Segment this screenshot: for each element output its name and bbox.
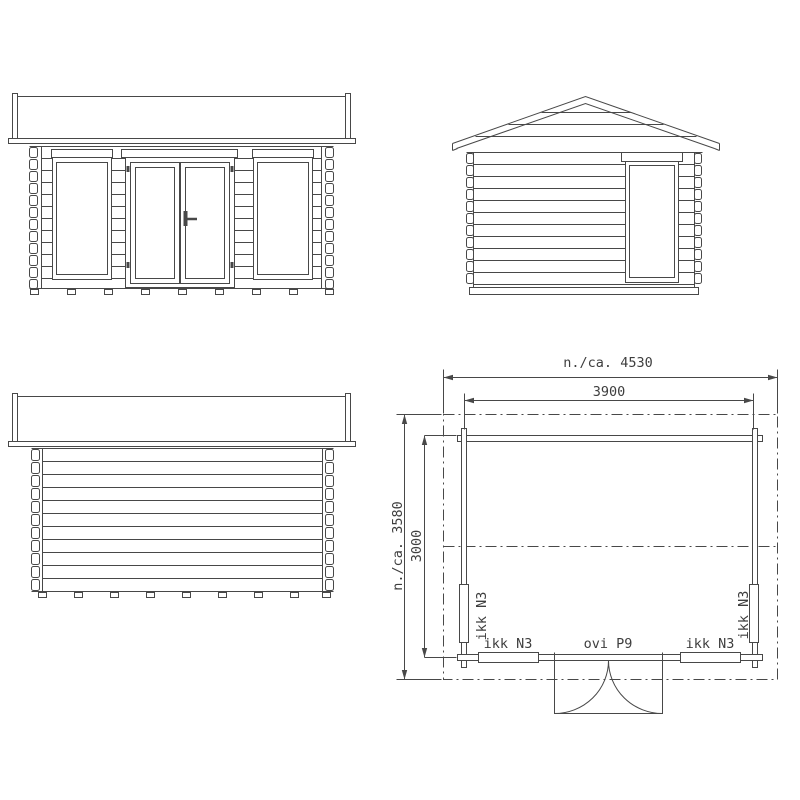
- side-elevation: [453, 97, 720, 295]
- plan-label-window-right-wall: ikk N3: [736, 591, 752, 640]
- dim-arrow-icon: [744, 398, 754, 403]
- dim-arrow-icon: [444, 375, 454, 380]
- plan-dimensions: n./ca. 4530 3900 n./ca. 3580 3000: [390, 355, 778, 680]
- front-elevation: [9, 94, 356, 295]
- dim-arrow-icon: [402, 670, 407, 680]
- dim-arrow-icon: [422, 648, 427, 658]
- cabin-technical-drawing: n./ca. 4530 3900 n./ca. 3580 3000 ikk N3: [0, 0, 800, 800]
- plan-labels: ikk N3 ovi P9 ikk N3 ikk N3 ikk N3: [474, 591, 752, 652]
- door-hinge-icon: [231, 166, 234, 172]
- rear-wall-logs: [32, 449, 334, 592]
- front-window-left: [52, 150, 113, 280]
- door-hinge-icon: [127, 166, 130, 172]
- dim-arrow-icon: [465, 398, 475, 403]
- plan-label-window-left-wall: ikk N3: [474, 592, 490, 641]
- front-corner-log-ends-left: [30, 148, 38, 289]
- side-corner-log-ends-left: [467, 154, 474, 284]
- door-hinge-icon: [231, 262, 234, 268]
- plan-window-front-right: [681, 653, 741, 663]
- plan-walls: [458, 429, 763, 668]
- plan-label-door: ovi P9: [584, 636, 633, 652]
- front-foundation-blocks: [31, 290, 334, 295]
- plan-door: [555, 661, 663, 714]
- plan-wall-back: [458, 436, 763, 442]
- side-base: [470, 288, 699, 295]
- rear-corner-log-ends-left: [32, 450, 40, 591]
- plan-dim-wall-width: 3900: [593, 384, 626, 400]
- dim-arrow-icon: [768, 375, 778, 380]
- dim-arrow-icon: [402, 415, 407, 425]
- side-window: [622, 153, 683, 283]
- plan-dim-wall-depth: 3000: [409, 530, 425, 563]
- plan-window-front-left: [479, 653, 539, 663]
- front-corner-log-ends-right: [326, 148, 334, 289]
- rear-elevation: [9, 394, 356, 598]
- front-double-door: [122, 150, 238, 288]
- plan-label-window-front-right: ikk N3: [686, 636, 735, 652]
- rear-corner-log-ends-right: [326, 450, 334, 591]
- door-swing-arc-left: [555, 661, 609, 714]
- door-hinge-icon: [127, 262, 130, 268]
- plan-window-left-wall: [460, 585, 469, 643]
- rear-foundation-blocks: [39, 593, 331, 598]
- side-corner-log-ends-right: [695, 154, 702, 284]
- drawing-canvas: n./ca. 4530 3900 n./ca. 3580 3000 ikk N3: [0, 0, 800, 800]
- rear-roof: [9, 394, 356, 447]
- front-window-right: [253, 150, 314, 280]
- door-swing-arc-right: [609, 661, 663, 714]
- floor-plan: n./ca. 4530 3900 n./ca. 3580 3000 ikk N3: [390, 355, 778, 714]
- plan-dim-overall-depth: n./ca. 3580: [390, 501, 406, 590]
- plan-dim-overall-width: n./ca. 4530: [563, 355, 652, 371]
- dim-arrow-icon: [422, 436, 427, 446]
- plan-label-window-front-left: ikk N3: [484, 636, 533, 652]
- front-roof: [9, 94, 356, 144]
- side-roof: [453, 97, 720, 151]
